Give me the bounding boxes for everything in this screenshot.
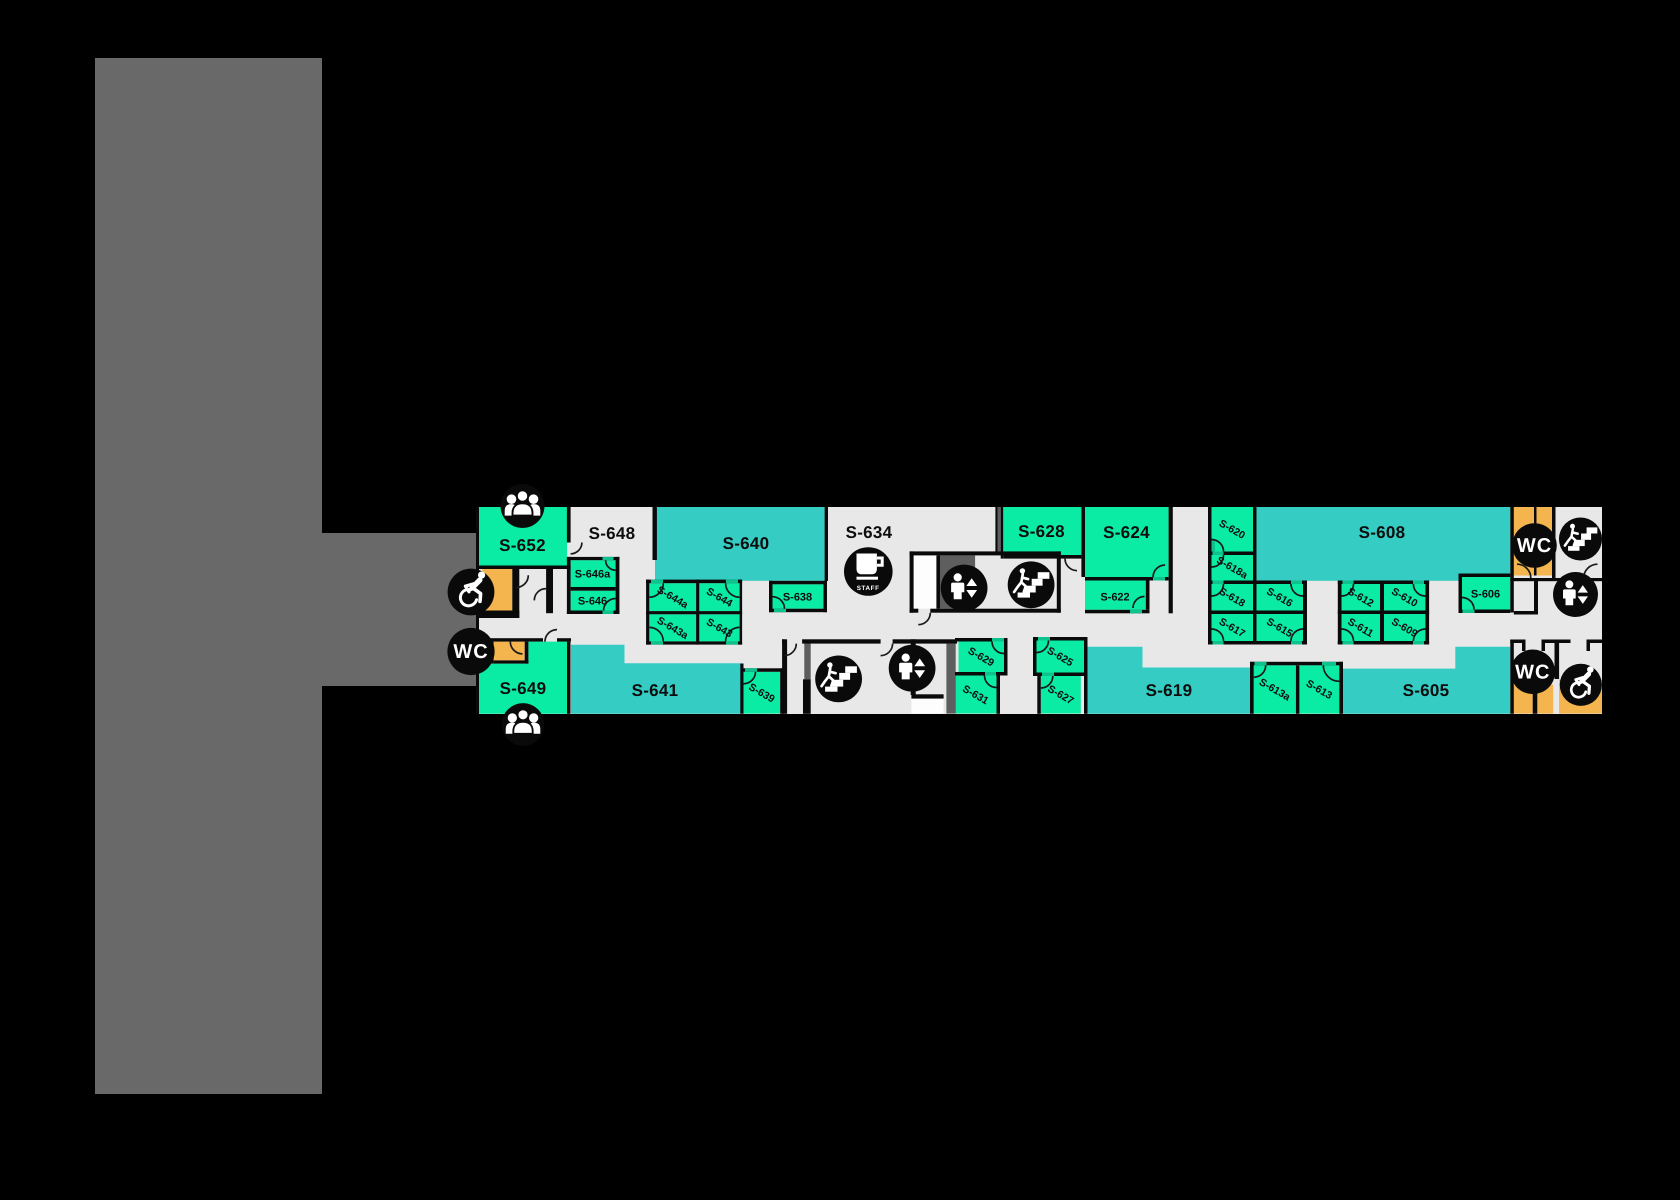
svg-text:S-608: S-608 — [1359, 523, 1406, 542]
svg-text:WC: WC — [1515, 662, 1550, 684]
svg-text:S-619: S-619 — [1146, 681, 1193, 700]
svg-text:S-622: S-622 — [1100, 592, 1129, 604]
svg-text:S-640: S-640 — [723, 534, 770, 553]
svg-text:S-634: S-634 — [846, 523, 893, 542]
svg-text:S-638: S-638 — [783, 592, 812, 604]
svg-text:S-628: S-628 — [1018, 522, 1065, 541]
svg-text:S-641: S-641 — [632, 681, 679, 700]
svg-text:S-605: S-605 — [1403, 681, 1450, 700]
svg-text:WC: WC — [453, 641, 488, 663]
svg-text:S-646: S-646 — [578, 596, 607, 608]
svg-text:S-624: S-624 — [1103, 523, 1150, 542]
svg-text:WC: WC — [1517, 535, 1552, 557]
svg-text:S-652: S-652 — [499, 536, 546, 555]
svg-text:S-649: S-649 — [500, 679, 547, 698]
svg-text:S-648: S-648 — [589, 524, 636, 543]
svg-text:S-606: S-606 — [1471, 589, 1500, 601]
svg-text:S-646a: S-646a — [575, 569, 611, 581]
